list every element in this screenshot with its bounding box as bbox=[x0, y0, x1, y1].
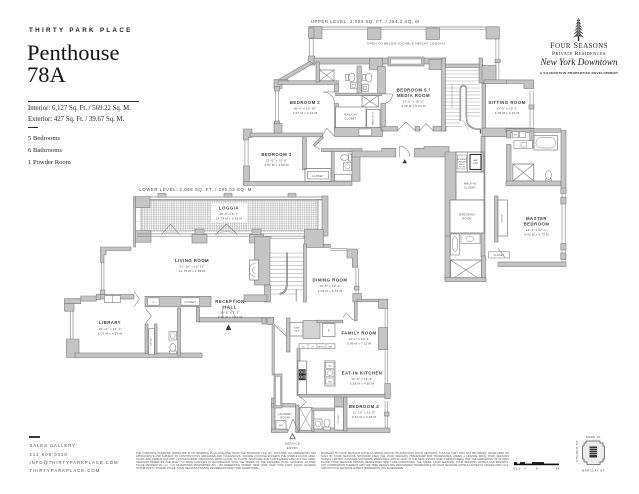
svg-text:BKFST: BKFST bbox=[318, 346, 325, 348]
svg-text:LOGGIA: LOGGIA bbox=[219, 206, 239, 211]
svg-text:LIVING ROOM: LIVING ROOM bbox=[175, 258, 209, 263]
svg-text:RECEPTION: RECEPTION bbox=[215, 299, 244, 304]
svg-text:14.78 M x 2.62 M: 14.78 M x 2.62 M bbox=[216, 217, 243, 221]
svg-text:MEDIA ROOM: MEDIA ROOM bbox=[397, 93, 430, 98]
svg-text:CLOSET: CLOSET bbox=[312, 174, 324, 178]
svg-text:PARK PL: PARK PL bbox=[586, 435, 601, 439]
svg-text:CHURCH ST: CHURCH ST bbox=[575, 441, 579, 462]
svg-text:FAMILY ROOM: FAMILY ROOM bbox=[341, 330, 376, 335]
svg-text:WALK-IN: WALK-IN bbox=[464, 181, 477, 185]
svg-text:10'-6" x 7'-3": 10'-6" x 7'-3" bbox=[220, 310, 240, 314]
svg-text:LAUNDRY: LAUNDRY bbox=[278, 412, 292, 416]
svg-text:5.18 M x 5.54 M: 5.18 M x 5.54 M bbox=[401, 104, 426, 108]
svg-text:CLOSET: CLOSET bbox=[464, 185, 476, 189]
svg-text:BEDROOM 4: BEDROOM 4 bbox=[349, 404, 379, 409]
svg-text:BEDROOM: BEDROOM bbox=[524, 222, 550, 227]
svg-text:DO: DO bbox=[302, 346, 306, 348]
svg-text:3.99 M x 7.11 M: 3.99 M x 7.11 M bbox=[347, 342, 372, 346]
svg-text:16: 16 bbox=[556, 467, 560, 471]
svg-text:48'-6" x 8'-7": 48'-6" x 8'-7" bbox=[219, 212, 239, 216]
svg-text:13'-5" x 19'-0": 13'-5" x 19'-0" bbox=[319, 284, 340, 288]
svg-text:DINING ROOM: DINING ROOM bbox=[313, 278, 348, 283]
svg-text:4.42 M x 6.73 M: 4.42 M x 6.73 M bbox=[524, 232, 549, 236]
svg-text:P: P bbox=[328, 329, 330, 333]
svg-text:WALK-IN CL: WALK-IN CL bbox=[371, 111, 374, 126]
svg-text:11'-10" x 11'-5": 11'-10" x 11'-5" bbox=[353, 410, 376, 414]
svg-text:OPEN TO BELOW (DOUBLE HEIGHT L: OPEN TO BELOW (DOUBLE HEIGHT LOGGIA) bbox=[367, 41, 445, 45]
svg-text:BEDROOM 3: BEDROOM 3 bbox=[261, 152, 291, 157]
svg-text:6.07 M x 4.29 M: 6.07 M x 4.29 M bbox=[98, 331, 123, 335]
svg-text:BEDROOM 2: BEDROOM 2 bbox=[290, 100, 320, 105]
svg-text:13'-5" x 13'-2": 13'-5" x 13'-2" bbox=[496, 106, 517, 110]
svg-text:ROOM: ROOM bbox=[280, 416, 290, 420]
svg-text:3.61 M x 3.48 M: 3.61 M x 3.48 M bbox=[352, 415, 377, 419]
svg-text:CLOSET: CLOSET bbox=[502, 213, 504, 223]
svg-text:CLOSET: CLOSET bbox=[345, 116, 357, 120]
svg-text:4.09 M x 4.01 M: 4.09 M x 4.01 M bbox=[495, 111, 520, 115]
svg-text:CLOSET: CLOSET bbox=[185, 300, 197, 304]
svg-text:15'-0" x 13'-0": 15'-0" x 13'-0" bbox=[266, 158, 287, 162]
svg-text:C: C bbox=[153, 300, 155, 304]
svg-text:WALK-IN: WALK-IN bbox=[344, 112, 357, 116]
svg-text:WINE: WINE bbox=[294, 328, 300, 330]
svg-text:DW: DW bbox=[328, 381, 332, 383]
svg-text:4.57 M x 3.96 M: 4.57 M x 3.96 M bbox=[264, 163, 289, 167]
svg-text:18'-4" x 13'-10": 18'-4" x 13'-10" bbox=[293, 107, 316, 111]
svg-text:MASTER: MASTER bbox=[526, 216, 547, 221]
svg-text:DRESSING: DRESSING bbox=[459, 212, 475, 216]
svg-text:12.75 M x 4.85 M: 12.75 M x 4.85 M bbox=[179, 269, 206, 273]
svg-text:3.20 M x 2.21 M: 3.20 M x 2.21 M bbox=[218, 315, 243, 319]
svg-text:SERVICE: SERVICE bbox=[285, 442, 300, 446]
svg-text:19'-11" x 14'-1": 19'-11" x 14'-1" bbox=[98, 327, 121, 331]
svg-text:17'-0" x 18'-2": 17'-0" x 18'-2" bbox=[403, 100, 424, 104]
svg-text:4.67 M x 4.24 M: 4.67 M x 4.24 M bbox=[293, 111, 318, 115]
svg-text:3.28 M x 4.50 M: 3.28 M x 4.50 M bbox=[350, 382, 375, 386]
svg-text:W/D: W/D bbox=[279, 425, 284, 427]
svg-text:4.09 M x 5.79 M: 4.09 M x 5.79 M bbox=[318, 289, 343, 293]
svg-text:ENTRY: ENTRY bbox=[287, 446, 299, 450]
svg-text:41'-10" x 15'-11": 41'-10" x 15'-11" bbox=[180, 265, 205, 269]
svg-text:BARCLAY ST: BARCLAY ST bbox=[582, 469, 604, 473]
svg-text:8: 8 bbox=[536, 467, 538, 471]
svg-text:SITTING ROOM: SITTING ROOM bbox=[488, 100, 525, 105]
svg-text:13'-1" x 23'-4": 13'-1" x 23'-4" bbox=[348, 337, 369, 341]
svg-text:HEAT: HEAT bbox=[473, 159, 479, 162]
svg-text:PUMP: PUMP bbox=[473, 163, 479, 165]
svg-text:0 1 2: 0 1 2 bbox=[514, 467, 521, 471]
svg-text:10'-9" x 14'-9": 10'-9" x 14'-9" bbox=[351, 377, 372, 381]
svg-text:CLOSET: CLOSET bbox=[338, 413, 340, 423]
svg-text:LIBRARY: LIBRARY bbox=[99, 320, 121, 325]
svg-text:WR: WR bbox=[329, 346, 333, 348]
svg-text:ROOM: ROOM bbox=[462, 216, 472, 220]
svg-text:DW: DW bbox=[328, 366, 332, 368]
svg-text:14'-6" x 22'-1": 14'-6" x 22'-1" bbox=[526, 228, 547, 232]
svg-text:4: 4 bbox=[524, 467, 526, 471]
svg-text:CHLR: CHLR bbox=[294, 331, 300, 333]
svg-text:DRYER: DRYER bbox=[150, 337, 152, 345]
svg-text:BEDROOM 5 /: BEDROOM 5 / bbox=[397, 88, 431, 93]
svg-text:EAT-IN KITCHEN: EAT-IN KITCHEN bbox=[342, 370, 383, 375]
svg-text:ROOM: ROOM bbox=[459, 166, 465, 168]
svg-text:-: - bbox=[342, 177, 343, 180]
